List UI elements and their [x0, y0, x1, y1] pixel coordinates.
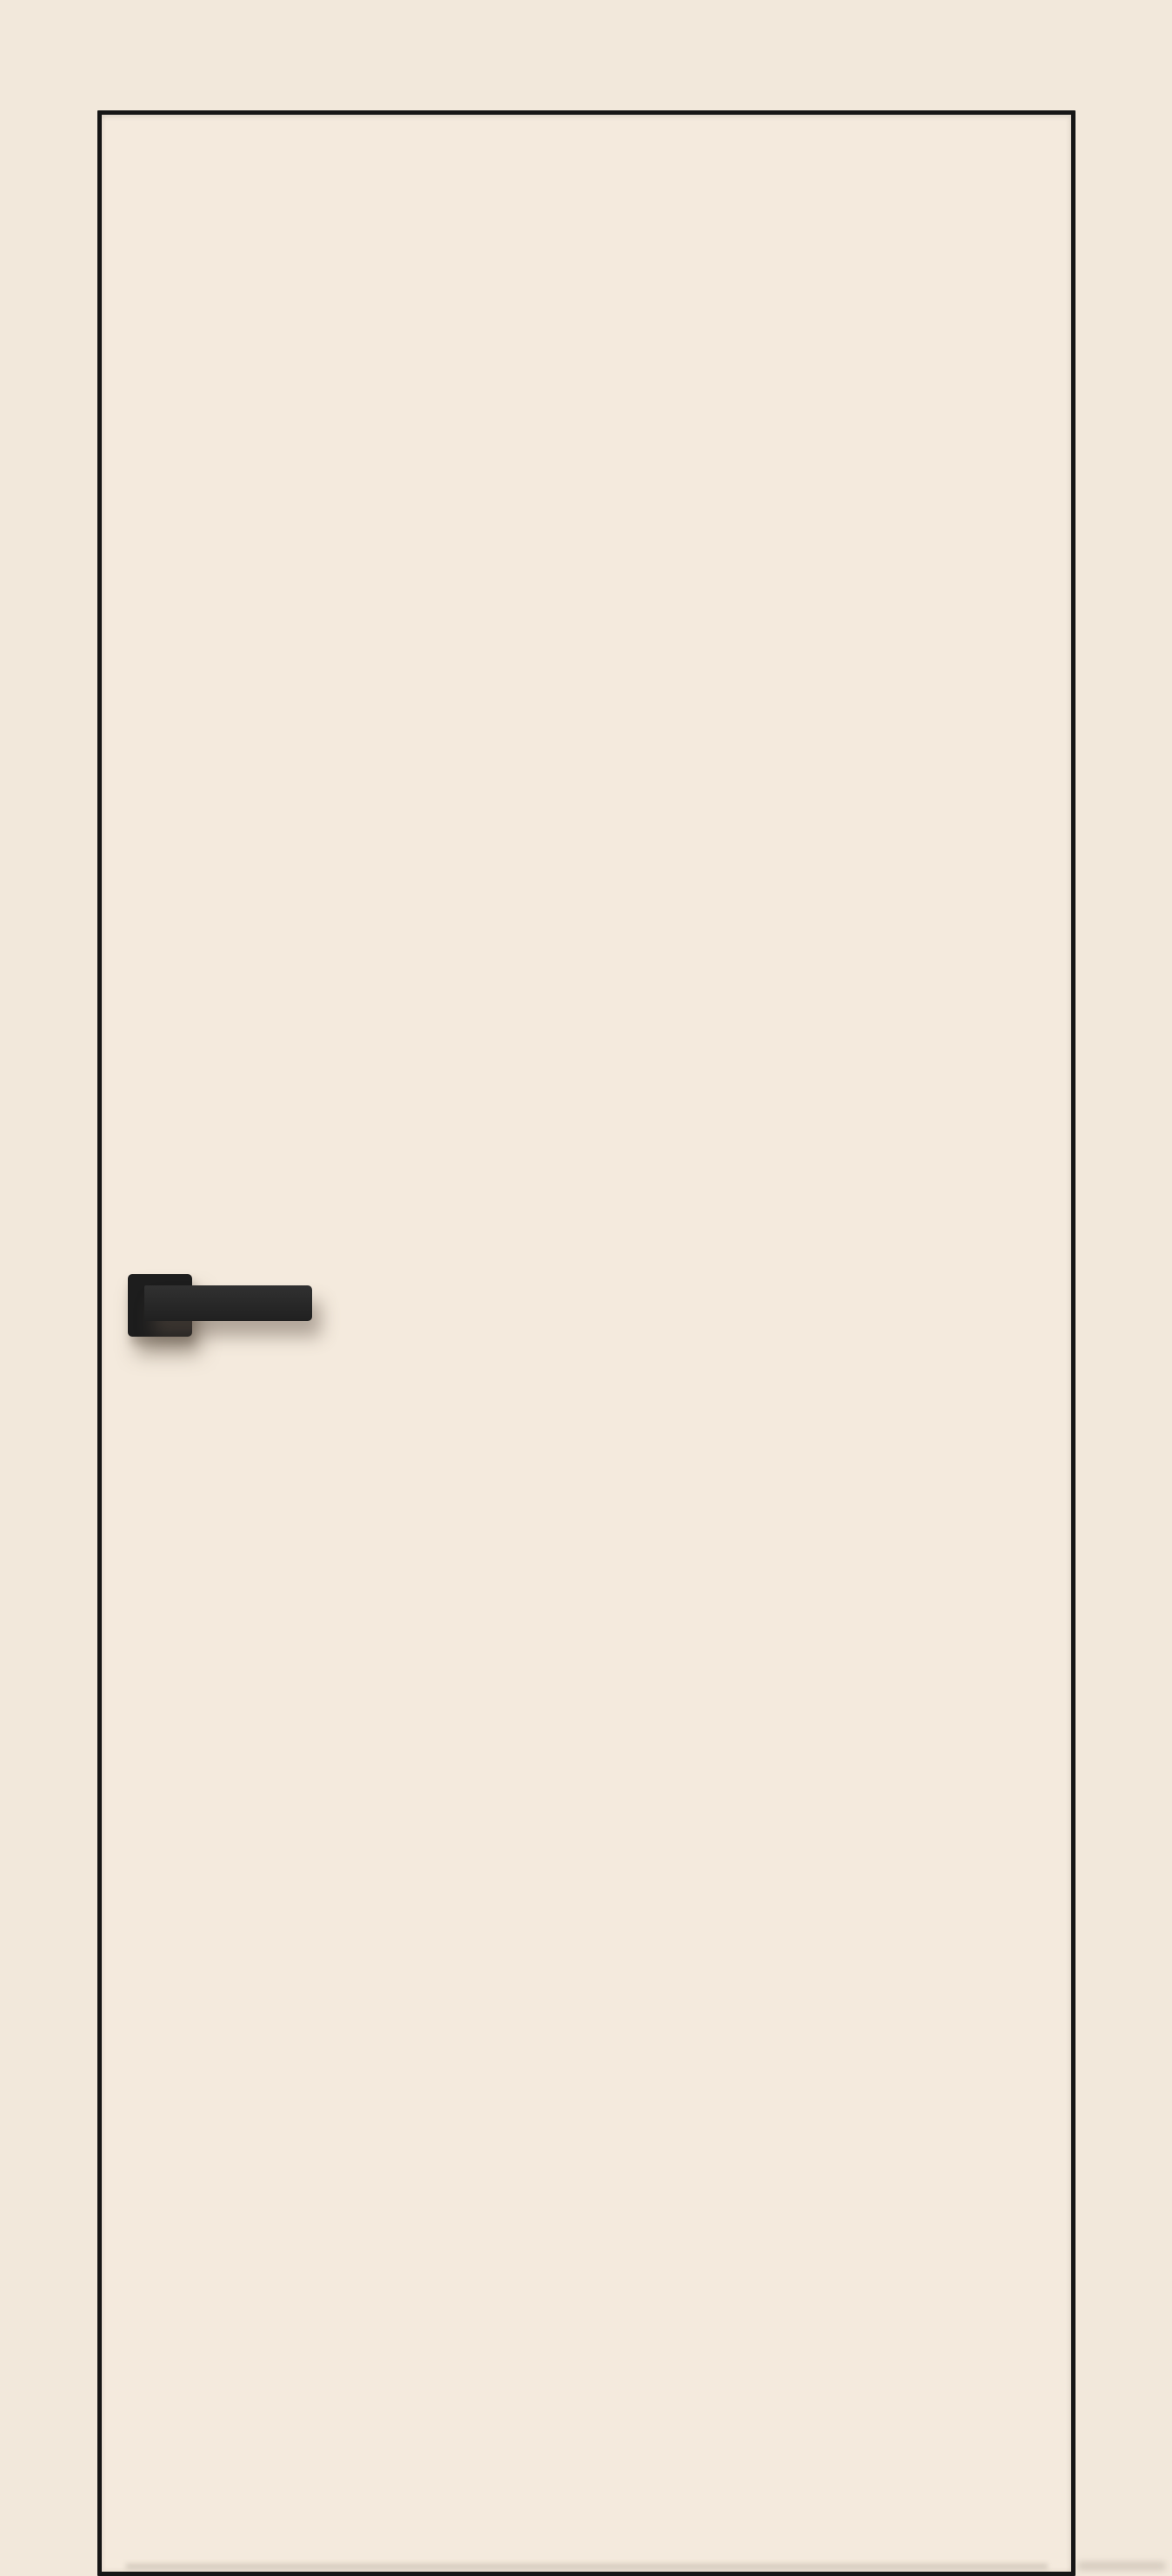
- product-photo: [0, 0, 1172, 2576]
- floor-shadow: [1078, 2562, 1165, 2570]
- door-leaf: [97, 110, 1075, 2576]
- scene: { "scene": { "colors": { "background": "…: [0, 0, 1172, 2576]
- door-bottom-shadow: [126, 2564, 1048, 2569]
- door-handle-lever: [144, 1285, 312, 1321]
